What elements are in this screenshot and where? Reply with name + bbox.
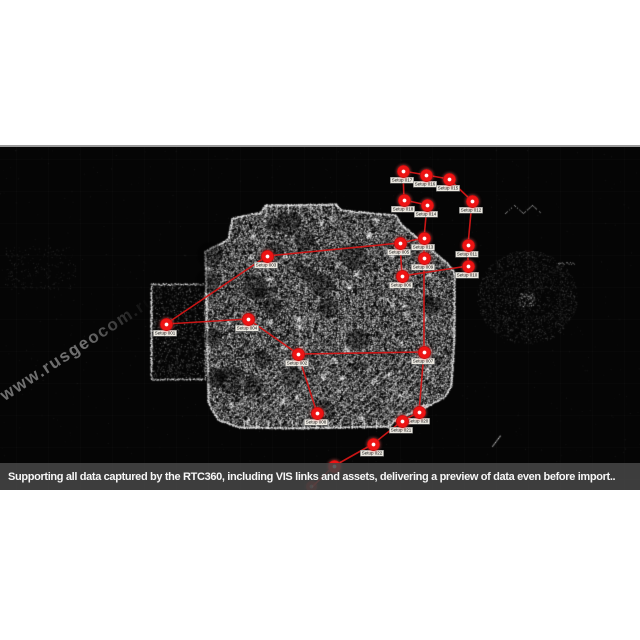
setup-node[interactable]	[462, 239, 475, 252]
setup-label: Setup 008	[304, 419, 328, 426]
vis-link-line	[166, 319, 248, 324]
setup-label: Setup 022	[360, 450, 384, 457]
setup-label: Setup 018	[391, 206, 415, 213]
caption-bar: Supporting all data captured by the RTC3…	[0, 463, 640, 490]
setup-node[interactable]	[261, 250, 274, 263]
setup-node[interactable]	[418, 252, 431, 265]
caption-text: Supporting all data captured by the RTC3…	[0, 471, 615, 483]
screenshot-page: Setup 017Setup 016Setup 015Setup 012Setu…	[0, 0, 640, 640]
vis-link-line	[267, 243, 400, 256]
setup-label: Setup 017	[390, 177, 414, 184]
setup-node[interactable]	[413, 406, 426, 419]
setup-label: Setup 003	[254, 262, 278, 269]
setup-node[interactable]	[421, 199, 434, 212]
video-frame: Setup 017Setup 016Setup 015Setup 012Setu…	[0, 147, 640, 490]
setup-label: Setup 016	[413, 181, 437, 188]
vis-link-line	[298, 352, 424, 354]
setup-node[interactable]	[242, 313, 255, 326]
setup-label: Setup 001	[153, 330, 177, 337]
setup-node[interactable]	[398, 194, 411, 207]
setup-label: Setup 013	[411, 244, 435, 251]
setup-node[interactable]	[418, 232, 431, 245]
setup-label: Setup 006	[389, 282, 413, 289]
setup-node[interactable]	[367, 438, 380, 451]
setup-node[interactable]	[462, 260, 475, 273]
setup-node[interactable]	[394, 237, 407, 250]
setup-label: Setup 009	[411, 264, 435, 271]
setup-node[interactable]	[420, 169, 433, 182]
setup-node[interactable]	[396, 270, 409, 283]
setup-node[interactable]	[160, 318, 173, 331]
setup-label: Setup 007	[411, 358, 435, 365]
setup-node[interactable]	[418, 346, 431, 359]
setup-label: Setup 011	[455, 251, 478, 258]
setup-label: Setup 012	[459, 207, 483, 214]
setup-label: Setup 002	[285, 360, 309, 367]
setup-node[interactable]	[397, 165, 410, 178]
setup-node[interactable]	[396, 415, 409, 428]
setup-label: Setup 014	[414, 211, 438, 218]
setup-node[interactable]	[466, 195, 479, 208]
setup-label: Setup 021	[389, 427, 413, 434]
vis-links-layer	[0, 147, 640, 490]
setup-node[interactable]	[443, 173, 456, 186]
setup-label: Setup 010	[455, 272, 479, 279]
setup-node[interactable]	[292, 348, 305, 361]
setup-label: Setup 005	[387, 249, 411, 256]
setup-label: Setup 004	[235, 325, 259, 332]
setup-node[interactable]	[311, 407, 324, 420]
setup-label: Setup 020	[406, 418, 430, 425]
setup-label: Setup 015	[436, 185, 460, 192]
